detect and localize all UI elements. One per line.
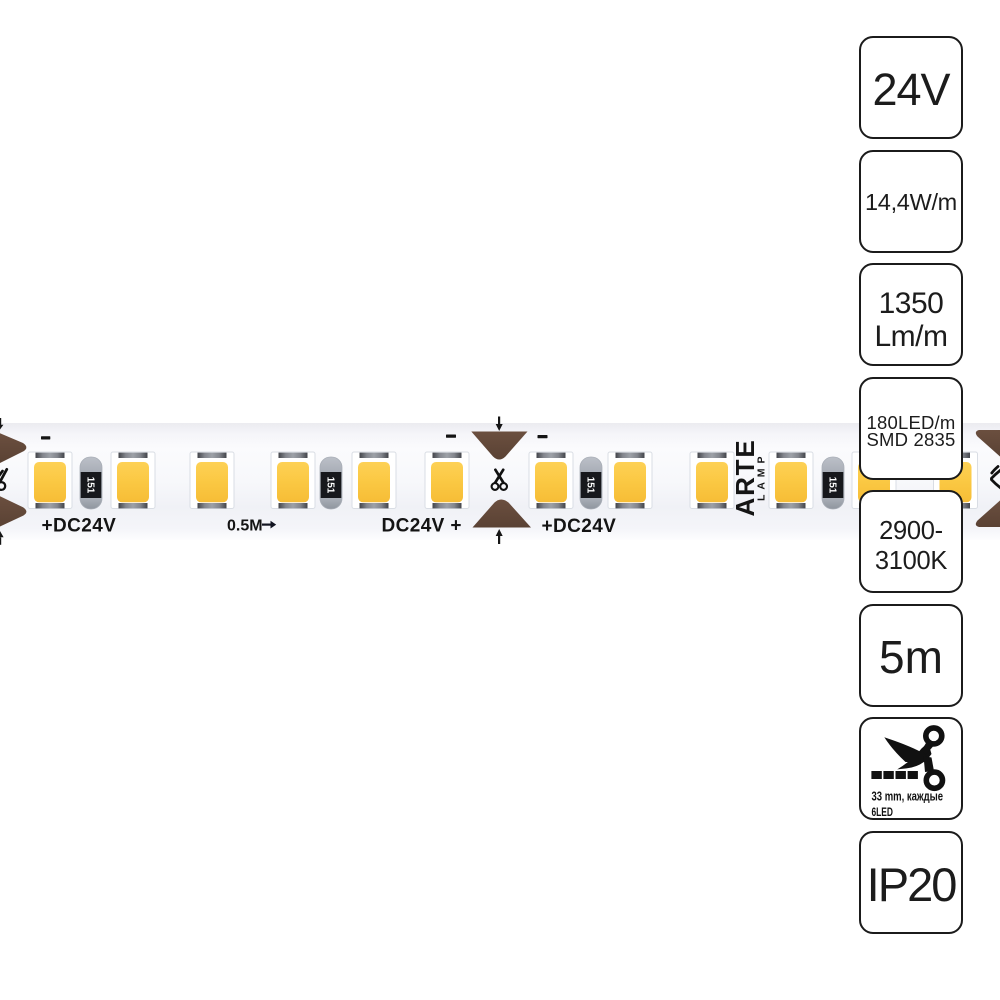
svg-text:6LED: 6LED	[872, 807, 894, 818]
svg-text:33 mm, каждые: 33 mm, каждые	[872, 790, 944, 804]
svg-text:151: 151	[826, 477, 837, 494]
svg-text:DC24V +: DC24V +	[382, 516, 462, 537]
svg-text:151: 151	[324, 477, 335, 494]
svg-text:+DC24V: +DC24V	[42, 516, 117, 537]
svg-text:0.5M: 0.5M	[227, 518, 263, 535]
svg-text:151: 151	[84, 477, 95, 494]
svg-text:LAMP: LAMP	[756, 452, 768, 501]
svg-text:+DC24V: +DC24V	[542, 516, 617, 537]
svg-text:151: 151	[584, 477, 595, 494]
